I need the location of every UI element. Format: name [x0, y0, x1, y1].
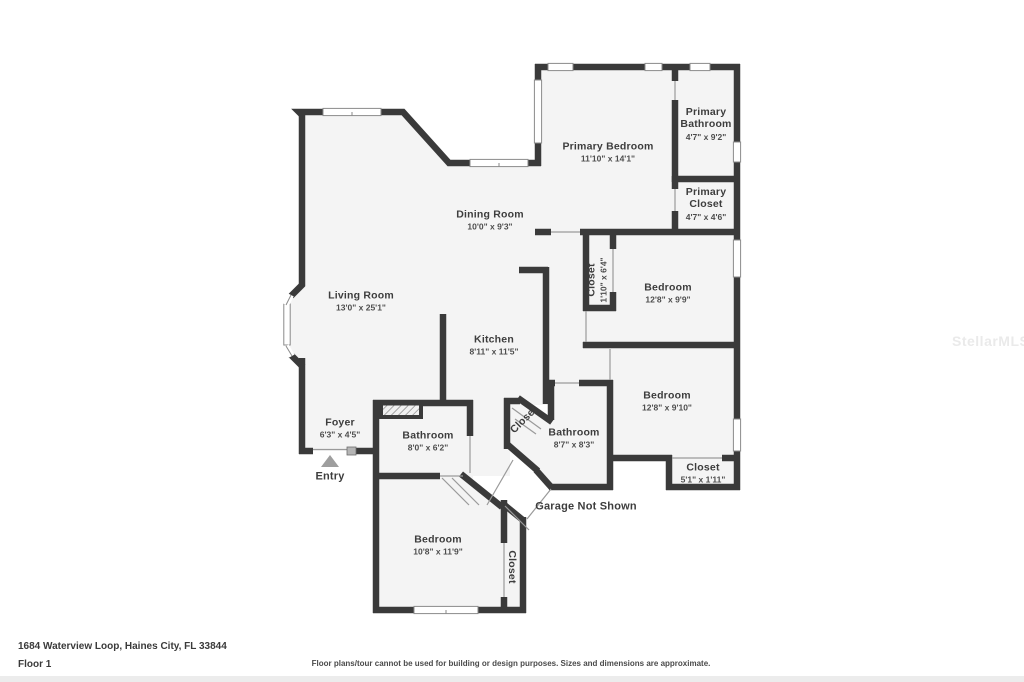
- disclaimer-text: Floor plans/tour cannot be used for buil…: [312, 659, 711, 668]
- floor-number: Floor 1: [18, 659, 51, 670]
- room-dims: 1'10" x 6'4": [599, 257, 609, 302]
- room-name: Primary Bedroom: [562, 140, 653, 152]
- room-name: Bedroom: [413, 533, 462, 545]
- label-bedroom-sw: Bedroom 10'8" x 11'9": [413, 533, 462, 556]
- room-name: Primary Closet: [670, 186, 742, 211]
- garage-text: Garage Not Shown: [535, 501, 637, 514]
- label-dining-room: Dining Room 10'0" x 9'3": [456, 208, 524, 231]
- label-primary-bathroom: Primary Bathroom 4'7" x 9'2": [670, 106, 742, 142]
- room-dims: 4'7" x 9'2": [670, 132, 742, 142]
- room-name: Dining Room: [456, 208, 524, 220]
- label-primary-bedroom: Primary Bedroom 11'10" x 14'1": [562, 140, 653, 163]
- room-name: Living Room: [328, 289, 394, 301]
- room-dims: 8'11" x 11'5": [470, 347, 519, 357]
- label-bathroom-west: Bathroom 8'0" x 6'2": [402, 429, 453, 452]
- entry-arrow-icon: [321, 455, 339, 467]
- room-name: Primary Bathroom: [670, 106, 742, 131]
- label-bathroom-center: Bathroom 8'7" x 8'3": [548, 426, 599, 449]
- room-dims: 8'7" x 8'3": [548, 440, 599, 450]
- label-hall-closet: Closet 1'10" x 6'4": [585, 257, 608, 302]
- room-dims: 11'10" x 14'1": [562, 154, 653, 164]
- room-dims: 12'8" x 9'10": [642, 403, 692, 413]
- room-dims: 12'8" x 9'9": [644, 295, 692, 305]
- room-name: Bedroom: [642, 389, 692, 401]
- floor-plan-page: Living Room 13'0" x 25'1" Dining Room 10…: [0, 0, 1024, 682]
- room-name: Kitchen: [470, 333, 519, 345]
- label-entry: Entry: [315, 471, 344, 484]
- label-bedroom-ne: Bedroom 12'8" x 9'9": [644, 281, 692, 304]
- room-dims: 8'0" x 6'2": [402, 443, 453, 453]
- label-closet-se: Closet 5'1" x 1'11": [681, 461, 726, 484]
- label-bedroom-se: Bedroom 12'8" x 9'10": [642, 389, 692, 412]
- room-dims: 4'7" x 4'6": [670, 212, 742, 222]
- room-name: Closet: [506, 550, 518, 583]
- room-name: Foyer: [320, 416, 360, 428]
- mls-watermark: StellarMLS: [952, 333, 1024, 349]
- label-foyer: Foyer 6'3" x 4'5": [320, 416, 360, 439]
- room-dims: 10'8" x 11'9": [413, 547, 462, 557]
- entry-door-frame: [347, 447, 356, 455]
- room-name: Closet: [585, 257, 597, 302]
- room-name: Bathroom: [402, 429, 453, 441]
- room-name: Closet: [681, 461, 726, 473]
- shower-hatch: [381, 404, 421, 418]
- label-kitchen: Kitchen 8'11" x 11'5": [470, 333, 519, 356]
- label-garage-not-shown: Garage Not Shown: [535, 501, 637, 514]
- property-address: 1684 Waterview Loop, Haines City, FL 338…: [18, 641, 227, 652]
- room-dims: 10'0" x 9'3": [456, 222, 524, 232]
- entry-text: Entry: [315, 471, 344, 484]
- room-dims: 5'1" x 1'11": [681, 475, 726, 485]
- room-dims: 13'0" x 25'1": [328, 303, 394, 313]
- label-primary-closet: Primary Closet 4'7" x 4'6": [670, 186, 742, 222]
- room-name: Bedroom: [644, 281, 692, 293]
- bottom-divider: [0, 676, 1024, 682]
- room-dims: 6'3" x 4'5": [320, 430, 360, 440]
- label-closet-sw: Closet: [506, 550, 518, 583]
- room-name: Bathroom: [548, 426, 599, 438]
- label-living-room: Living Room 13'0" x 25'1": [328, 289, 394, 312]
